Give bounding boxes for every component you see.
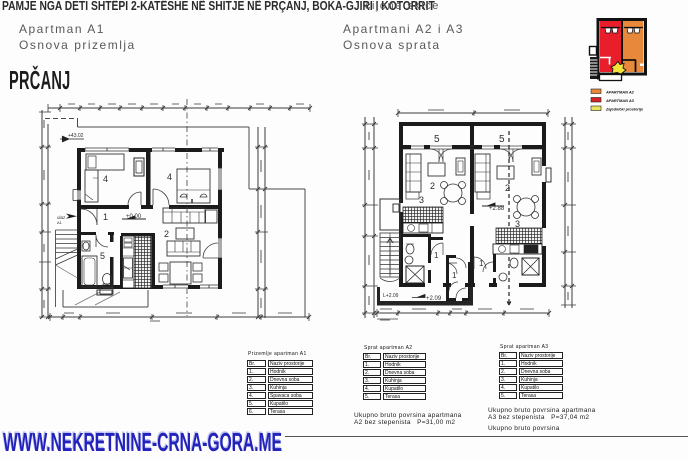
svg-text:4: 4	[103, 174, 108, 184]
svg-text:1: 1	[103, 212, 108, 222]
svg-text:+2.09: +2.09	[426, 296, 442, 302]
svg-text:5: 5	[499, 134, 505, 145]
svg-text:APARTMAN A2: APARTMAN A2	[605, 90, 635, 95]
svg-text:3: 3	[419, 195, 424, 205]
svg-text:3: 3	[515, 219, 520, 229]
svg-text:2: 2	[430, 181, 435, 191]
svg-text:5: 5	[434, 134, 440, 145]
svg-text:+2.88: +2.88	[489, 206, 505, 212]
svg-text:+43.02: +43.02	[68, 133, 84, 139]
svg-text:2: 2	[164, 229, 169, 239]
svg-text:1: 1	[434, 251, 439, 260]
svg-text:2: 2	[505, 183, 510, 193]
svg-text:L+2.09: L+2.09	[383, 293, 399, 299]
svg-text:4: 4	[167, 172, 172, 182]
svg-text:+0.00: +0.00	[126, 214, 142, 220]
svg-text:1: 1	[452, 271, 457, 280]
svg-text:5: 5	[100, 251, 105, 261]
svg-text:A1: A1	[57, 220, 63, 225]
svg-text:Zajednički prostorije: Zajednički prostorije	[605, 108, 643, 112]
svg-text:APARTMAN A3: APARTMAN A3	[605, 98, 635, 103]
svg-text:1: 1	[479, 259, 484, 268]
